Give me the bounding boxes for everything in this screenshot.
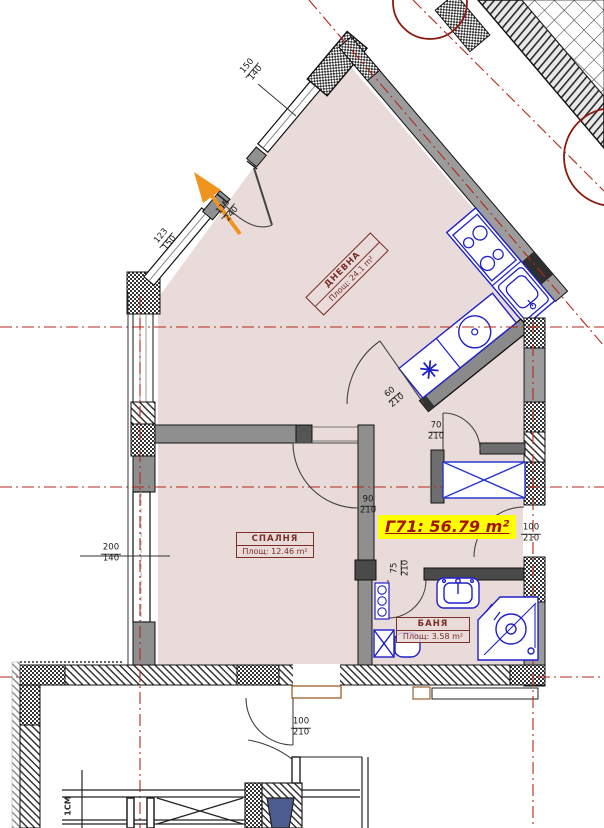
dim-door-bath: 75210 — [391, 558, 412, 578]
dim-door-hall: 70210 — [426, 422, 446, 443]
wall-bottom — [20, 662, 545, 699]
room-name: БАНЯ — [397, 618, 469, 631]
unit-area-label: Г71: 56.79 m² — [378, 515, 516, 539]
wall-left — [128, 292, 155, 665]
floor-plan: ДНЕВНА Площ: 24.1 m² СПАЛНЯ Площ: 12.46 … — [0, 0, 604, 828]
dim-window-left: 200140 — [101, 544, 121, 565]
room-area: Площ: 3.58 m² — [397, 631, 469, 642]
shaft-marker — [267, 798, 294, 828]
room-label-bath: БАНЯ Площ: 3.58 m² — [396, 617, 470, 643]
door-casing — [413, 687, 430, 699]
dim-door-corridor: 100210 — [291, 718, 311, 739]
bath-sink-icon — [437, 578, 479, 608]
wall-neighbor-left — [12, 662, 40, 828]
door-casing — [292, 686, 341, 698]
boiler-icon — [375, 583, 389, 619]
stair-note: 1СМ — [64, 796, 73, 815]
stairwell — [62, 757, 368, 828]
washing-machine-icon — [374, 630, 394, 657]
floor-plan-canvas — [0, 0, 604, 828]
dim-door-side: 100210 — [521, 524, 541, 545]
room-name: СПАЛНЯ — [237, 533, 313, 546]
room-label-bedroom: СПАЛНЯ Площ: 12.46 m² — [236, 532, 314, 558]
dim-door-bedroom: 90210 — [358, 496, 378, 517]
room-area: Площ: 12.46 m² — [237, 546, 313, 557]
door-swing-stairs — [248, 740, 292, 759]
door-swing-corridor — [246, 698, 293, 745]
wardrobe-icon — [443, 462, 525, 498]
parapet — [432, 688, 538, 699]
